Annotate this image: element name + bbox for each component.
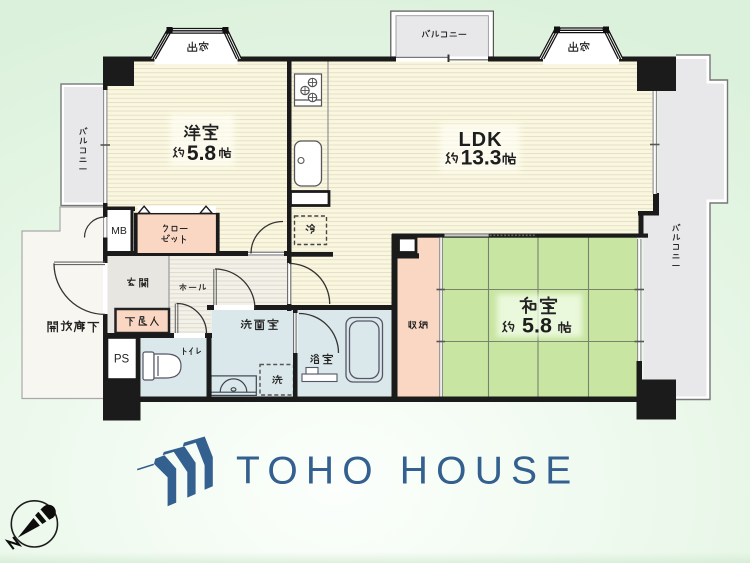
- svg-text:5.8: 5.8: [187, 142, 217, 165]
- svg-text:5.8: 5.8: [522, 314, 552, 338]
- svg-text:PS: PS: [114, 354, 130, 366]
- svg-text:TOHO HOUSE: TOHO HOUSE: [236, 450, 579, 493]
- svg-text:MB: MB: [111, 225, 127, 237]
- svg-text:13.3: 13.3: [461, 147, 502, 170]
